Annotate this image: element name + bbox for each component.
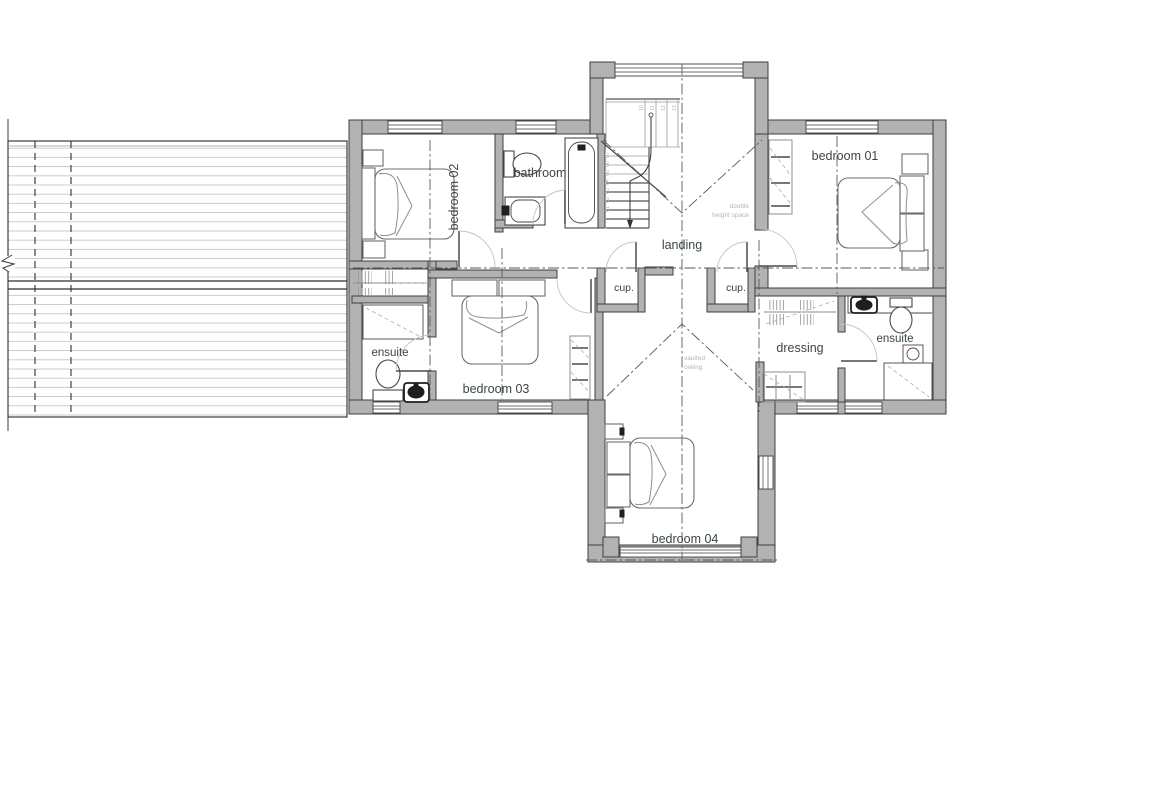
window <box>516 121 556 133</box>
stair-tread-number: 02 <box>605 197 611 203</box>
double-height-note: double <box>729 203 749 210</box>
door-bedroom03 <box>557 279 591 313</box>
toilet-cistern-icon <box>890 298 912 307</box>
toilet-icon <box>890 307 912 333</box>
room-label-bedroom02: bedroom 02 <box>447 164 461 231</box>
door-ensuite-right <box>840 324 877 361</box>
stair-tread-number: 03 <box>605 188 611 194</box>
shelving-bedroom03 <box>570 336 590 399</box>
stair-tread-number: 05 <box>605 170 611 176</box>
room-label-bedroom03: bedroom 03 <box>463 382 530 396</box>
stair-tread-number: 06 <box>605 161 611 167</box>
roof-hatch <box>8 141 347 417</box>
wash-basin-icon <box>404 383 429 402</box>
stair-direction-arrow <box>630 117 651 222</box>
room-label-landing: landing <box>662 238 702 252</box>
room-label-ensuite-right: ensuite <box>876 333 913 345</box>
door-bedroom01 <box>759 229 797 266</box>
door-bedroom02 <box>459 231 495 267</box>
vaulted-ceiling-note: ceiling <box>684 364 703 371</box>
wardrobe-bedroom01 <box>769 140 792 214</box>
door-cupboard-right <box>717 242 747 272</box>
room-label-bathroom: bathroom <box>514 166 567 180</box>
wardrobe-dressing-top <box>764 300 836 325</box>
bed-icon-bedroom01 <box>838 154 928 270</box>
window <box>620 547 741 557</box>
bed-icon-bedroom03 <box>452 280 545 364</box>
stair-tread-number: 13 <box>672 105 678 111</box>
vaulted-ceiling-outline <box>607 324 753 396</box>
bathroom-fixtures <box>502 138 598 228</box>
window <box>845 402 882 413</box>
staircase: 07 06 05 04 03 02 01 10 11 12 13 <box>601 99 680 229</box>
stair-tread-number: 11 <box>650 105 656 110</box>
wardrobe-bedroom02 <box>353 271 427 295</box>
vaulted-ceiling-note: vaulted <box>684 355 705 362</box>
room-label-ensuite-left: ensuite <box>371 347 408 359</box>
bed-icon-bedroom02 <box>362 150 454 258</box>
shower-icon <box>363 305 423 339</box>
stair-tread-number: 04 <box>605 179 611 185</box>
window <box>797 402 838 413</box>
stair-tread-number: 10 <box>639 105 645 111</box>
wash-basin-icon <box>851 296 877 313</box>
stair-tread-number: 12 <box>661 105 667 111</box>
window <box>806 121 878 133</box>
bath-icon <box>565 138 598 228</box>
room-label-bedroom04: bedroom 04 <box>652 532 719 546</box>
roof-below-area <box>0 119 347 431</box>
window <box>759 456 773 489</box>
window <box>373 402 400 413</box>
room-label-dressing: dressing <box>776 341 823 355</box>
stair-tread-number: 07 <box>605 152 611 158</box>
room-label-bedroom01: bedroom 01 <box>812 149 879 163</box>
window <box>615 64 743 76</box>
floor-plan-page: 07 06 05 04 03 02 01 10 11 12 13 <box>0 0 1152 790</box>
room-label-cupboard-right: cup. <box>726 282 746 294</box>
bed-icon-bedroom04 <box>605 424 694 523</box>
room-label-cupboard-left: cup. <box>614 282 634 294</box>
ensuite-right-fixtures <box>848 296 932 400</box>
stair-tread-number: 01 <box>605 206 611 212</box>
floor-plan-drawing: 07 06 05 04 03 02 01 10 11 12 13 <box>0 0 1152 790</box>
wardrobe-dressing-bottom <box>763 372 805 402</box>
window <box>388 121 442 133</box>
door-cupboard-left <box>606 242 636 272</box>
double-height-note: height space <box>712 212 749 219</box>
toilet-cistern-icon <box>373 390 403 401</box>
shower-icon <box>884 363 932 400</box>
extractor-icon <box>903 345 923 363</box>
window <box>498 402 552 413</box>
